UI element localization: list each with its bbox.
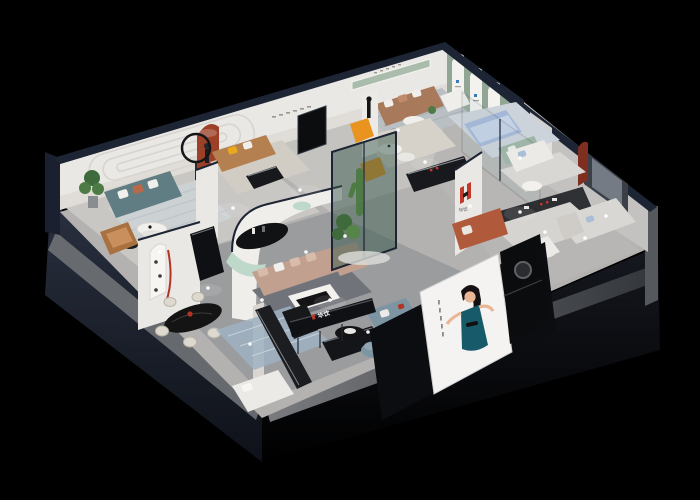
table-decor xyxy=(148,225,151,228)
plant-blob-3 xyxy=(332,228,344,240)
cactus xyxy=(356,168,363,216)
model-face xyxy=(464,291,475,302)
oval-table-vase xyxy=(252,228,255,234)
table-tray xyxy=(344,328,356,334)
display-speaker-circle xyxy=(515,262,531,278)
display-arch-niche xyxy=(150,244,166,300)
showroom-svg: 华饮 xyxy=(0,0,700,500)
pebble-bed xyxy=(338,251,390,265)
glass-plant-box xyxy=(332,132,396,270)
oval-table-vase-2 xyxy=(262,226,265,232)
mint-pouf xyxy=(293,202,311,211)
plant-blob-2 xyxy=(346,225,360,239)
table-centerpiece xyxy=(187,311,192,316)
showroom-render: Isometric 3D cutaway render of a furnitu… xyxy=(0,0,700,500)
white-table-right xyxy=(522,181,542,191)
sculpture-body xyxy=(367,101,371,118)
twin-table-2 xyxy=(397,153,415,162)
corner-column-left xyxy=(45,152,60,235)
small-plant xyxy=(428,106,436,114)
red-arch-niche-right xyxy=(578,142,588,186)
sculpture-head xyxy=(366,96,371,101)
